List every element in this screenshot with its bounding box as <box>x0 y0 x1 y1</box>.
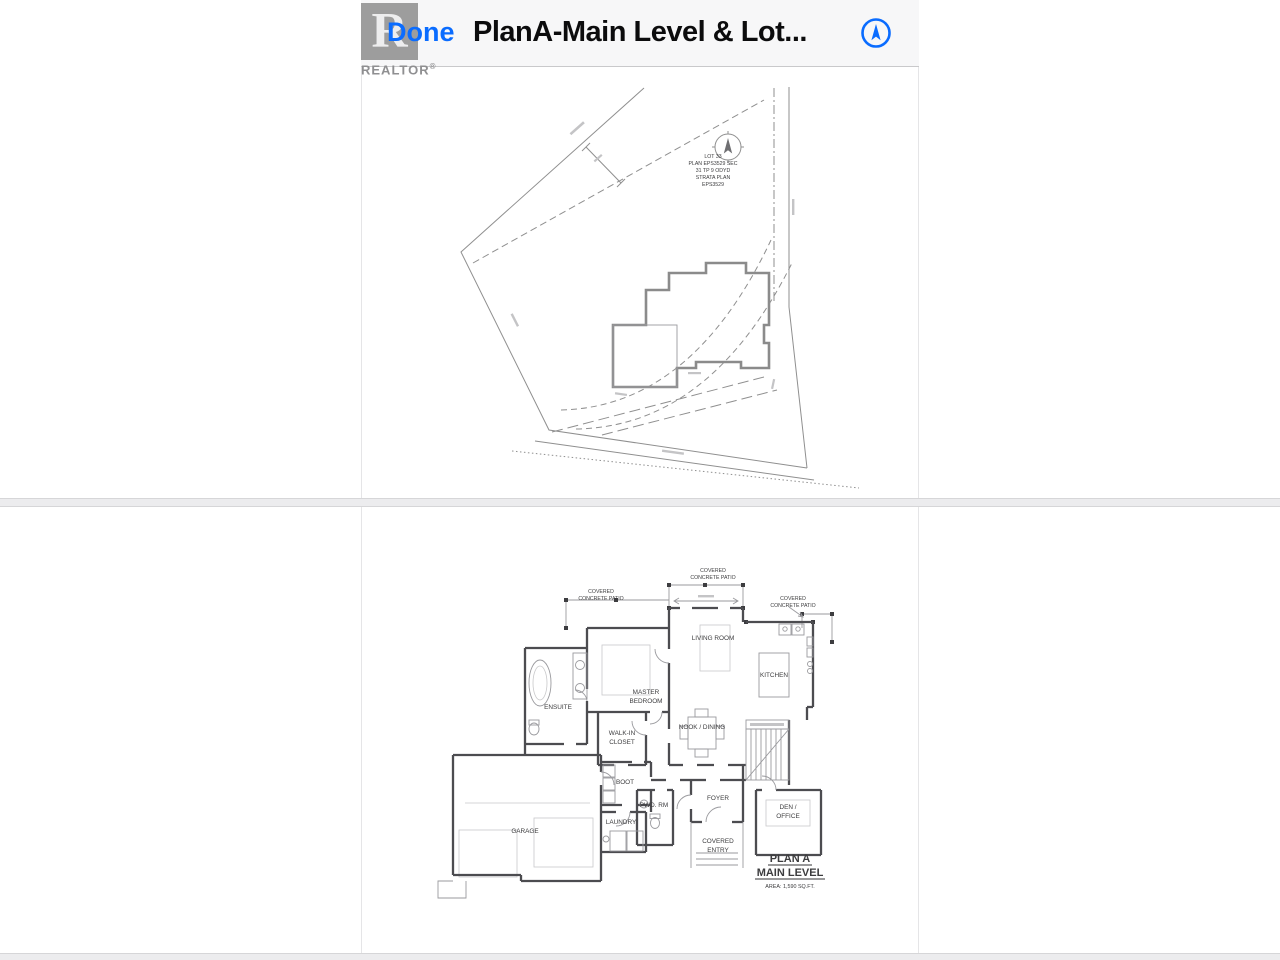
lot-legal-description: LOT 33 PLAN EPS3529 SEC 31 TP 9 ODYD STR… <box>688 154 737 188</box>
label-patio-left-2: CONCRETE PATIO <box>578 596 623 602</box>
label-patio-top-1: COVERED <box>700 568 726 574</box>
lot-plan-drawing: LOT 33 PLAN EPS3529 SEC 31 TP 9 ODYD STR… <box>362 67 920 498</box>
lot-text-line3: 31 TP 9 ODYD <box>696 168 731 174</box>
compass-nav-button[interactable] <box>859 16 893 50</box>
label-powder-room: PWD. RM <box>640 802 668 809</box>
lot-text-line4: STRATA PLAN <box>696 175 731 181</box>
pdf-page-floor-plan: COVERED CONCRETE PATIO COVERED CONCRETE … <box>361 507 919 953</box>
plan-area: AREA: 1,590 SQ.FT. <box>765 884 814 890</box>
plan-title: PLAN A <box>770 853 811 865</box>
label-patio-top-2: CONCRETE PATIO <box>690 575 735 581</box>
label-master-1: MASTER <box>633 689 660 696</box>
document-viewer: PlanA-Main Level & Lot... Done <box>0 0 1280 960</box>
plan-subtitle: MAIN LEVEL <box>757 867 824 879</box>
floor-plan-drawing: COVERED CONCRETE PATIO COVERED CONCRETE … <box>362 507 920 953</box>
label-entry-2: ENTRY <box>707 847 729 854</box>
label-patio-right-1: COVERED <box>780 596 806 602</box>
label-den-1: DEN / <box>779 804 796 811</box>
label-boot: BOOT <box>616 779 634 786</box>
label-ensuite: ENSUITE <box>544 704 572 711</box>
label-garage: GARAGE <box>511 828 538 835</box>
page-separator-bottom <box>0 953 1280 960</box>
realtor-label: REALTOR® <box>361 62 437 77</box>
label-patio-left-1: COVERED <box>588 589 614 595</box>
lot-text-line5: EPS3529 <box>702 182 724 188</box>
lot-text-line1: LOT 33 <box>704 154 721 160</box>
label-closet-1: WALK-IN <box>609 730 636 737</box>
pdf-page-lot-plan: LOT 33 PLAN EPS3529 SEC 31 TP 9 ODYD STR… <box>361 67 919 498</box>
label-laundry: LAUNDRY <box>606 819 637 826</box>
page-separator <box>0 498 1280 507</box>
label-master-2: BEDROOM <box>629 698 662 705</box>
label-entry-1: COVERED <box>702 838 734 845</box>
label-foyer: FOYER <box>707 795 729 802</box>
done-button[interactable]: Done <box>387 17 455 48</box>
document-scroll-area[interactable]: PlanA-Main Level & Lot... Done <box>361 0 919 960</box>
label-den-2: OFFICE <box>776 813 799 820</box>
lot-text-line2: PLAN EPS3529 SEC <box>688 161 737 167</box>
label-closet-2: CLOSET <box>609 739 635 746</box>
label-living-room: LIVING ROOM <box>692 635 735 642</box>
label-nook-dining: NOOK / DINING <box>679 724 726 731</box>
compass-arrow-icon <box>859 16 893 50</box>
label-patio-right-2: CONCRETE PATIO <box>770 603 815 609</box>
label-kitchen: KITCHEN <box>760 672 788 679</box>
